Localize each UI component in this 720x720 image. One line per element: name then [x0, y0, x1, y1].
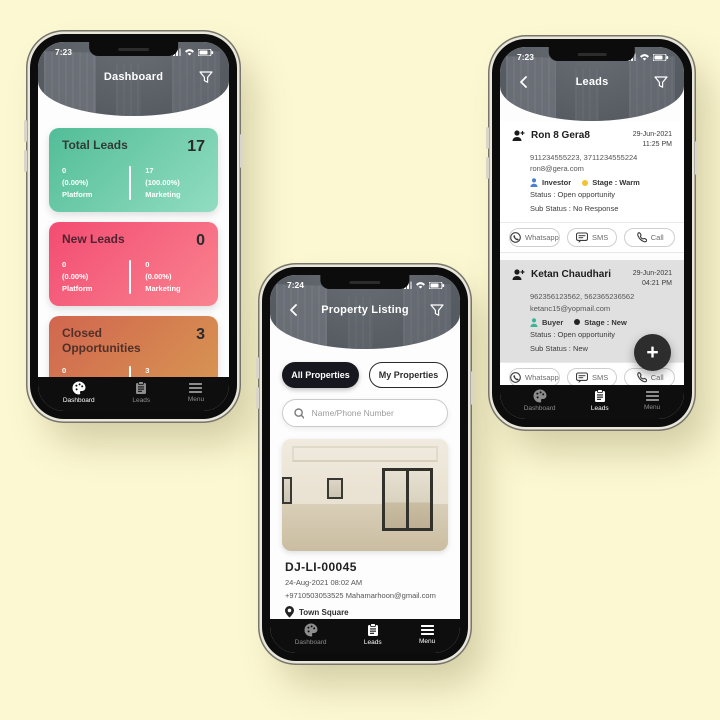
- dashboard-icon: [72, 381, 86, 395]
- bottom-nav: Dashboard Leads Menu: [500, 385, 684, 419]
- sms-button[interactable]: SMS: [567, 368, 618, 385]
- leads-screen: 7:23 Leads Ron 8 Gera8: [500, 47, 684, 419]
- tab-all-properties[interactable]: All Properties: [282, 362, 359, 388]
- marketing-stats: 3 (100.00%) Marketing: [129, 365, 205, 377]
- person-add-icon: [512, 130, 525, 142]
- nav-menu[interactable]: Menu: [644, 390, 660, 411]
- menu-icon: [646, 390, 659, 402]
- property-code: DJ-LI-00045: [285, 560, 445, 574]
- property-datetime: 24-Aug-2021 08:02 AM: [285, 578, 445, 587]
- property-tabs: All Properties My Properties: [282, 362, 448, 388]
- dashboard-icon: [304, 623, 318, 637]
- total-leads-card[interactable]: Total Leads 17 0 (0.00%) Platform 17 (10…: [49, 128, 218, 212]
- lead-card[interactable]: Ron 8 Gera8 29-Jun-2021 11:25 PM 9112345…: [500, 121, 684, 222]
- card-title: Closed Opportunities: [62, 326, 151, 356]
- whatsapp-icon: [510, 372, 521, 383]
- battery-icon: [198, 49, 214, 56]
- status-time: 7:23: [517, 52, 534, 62]
- back-button[interactable]: [515, 74, 531, 90]
- funnel-icon: [654, 76, 668, 89]
- call-icon: [636, 372, 647, 383]
- platform-stats: 0 (0.00%) Platform: [62, 259, 129, 295]
- lead-email: ketanc15@yopmail.com: [530, 304, 672, 313]
- power-button: [695, 141, 698, 175]
- phone-leads: 7:23 Leads Ron 8 Gera8: [492, 39, 692, 427]
- leads-icon: [594, 389, 606, 403]
- dashboard-icon: [533, 389, 547, 403]
- new-leads-card[interactable]: New Leads 0 0 (0.00%) Platform 0 (0.00%)…: [49, 222, 218, 306]
- whatsapp-button[interactable]: Whatsapp: [509, 368, 560, 385]
- sms-icon: [576, 232, 588, 243]
- phone-notch: [89, 42, 179, 56]
- platform-stats: 0 (0.00%) Platform: [62, 165, 129, 201]
- volume-down-button: [24, 150, 27, 172]
- closed-opportunities-card[interactable]: Closed Opportunities 3 0 (0.00%) Platfor…: [49, 316, 218, 377]
- wifi-icon: [185, 48, 194, 56]
- nav-dashboard[interactable]: Dashboard: [295, 623, 327, 646]
- chevron-left-icon: [289, 304, 298, 316]
- nav-leads[interactable]: Leads: [591, 389, 609, 412]
- volume-up-button: [256, 357, 259, 379]
- person-icon: [530, 318, 538, 327]
- lead-name: Ketan Chaudhari: [531, 269, 611, 280]
- whatsapp-icon: [510, 232, 521, 243]
- lead-datetime: 29-Jun-2021 04:21 PM: [633, 269, 672, 289]
- phone-property-listing: 7:24 Property Listing All Properties My …: [262, 267, 468, 661]
- nav-dashboard[interactable]: Dashboard: [524, 389, 556, 412]
- volume-up-button: [486, 127, 489, 149]
- filter-button[interactable]: [429, 302, 445, 318]
- nav-leads[interactable]: Leads: [132, 381, 150, 404]
- lead-status: Status : Open opportunity: [530, 189, 672, 201]
- property-listing-screen: 7:24 Property Listing All Properties My …: [270, 275, 460, 653]
- bottom-nav: Dashboard Leads Menu: [270, 619, 460, 653]
- funnel-icon: [199, 71, 213, 84]
- marketing-stats: 0 (0.00%) Marketing: [129, 259, 205, 295]
- leads-icon: [135, 381, 147, 395]
- property-community: Town Square: [285, 606, 445, 618]
- call-button[interactable]: Call: [624, 228, 675, 247]
- sms-button[interactable]: SMS: [567, 228, 618, 247]
- search-icon: [294, 408, 304, 419]
- lead-phones: 962356123562, 562365236562: [530, 292, 672, 301]
- card-value: 3: [196, 326, 205, 344]
- call-icon: [636, 232, 647, 243]
- battery-icon: [429, 282, 445, 289]
- sms-icon: [576, 372, 588, 383]
- power-button: [240, 134, 243, 168]
- volume-down-button: [256, 387, 259, 409]
- lead-email: ron8@gera.com: [530, 164, 672, 173]
- platform-stats: 0 (0.00%) Platform: [62, 365, 129, 377]
- stage-dot: [574, 319, 580, 325]
- menu-icon: [189, 382, 202, 394]
- filter-button[interactable]: [198, 69, 214, 85]
- property-photo[interactable]: [282, 439, 448, 551]
- lead-role-badge: Investor: [530, 178, 571, 187]
- battery-icon: [653, 54, 669, 61]
- lead-role-badge: Buyer: [530, 318, 563, 327]
- location-pin-icon: [285, 606, 294, 618]
- phone-notch: [320, 275, 409, 289]
- lead-datetime: 29-Jun-2021 11:25 PM: [633, 130, 672, 150]
- lead-sub-status: Sub Status : No Response: [530, 203, 672, 215]
- volume-down-button: [486, 157, 489, 179]
- wifi-icon: [416, 281, 425, 289]
- funnel-icon: [430, 304, 444, 317]
- lead-stage-badge: Stage : Warm: [582, 178, 640, 187]
- search-bar[interactable]: [282, 399, 448, 427]
- property-contact: +9710503053525 Mahamarhoon@gmail.com: [285, 591, 445, 600]
- status-time: 7:23: [55, 47, 72, 57]
- lead-actions: Whatsapp SMS Call: [500, 222, 684, 253]
- nav-menu[interactable]: Menu: [188, 382, 204, 403]
- bottom-nav: Dashboard Leads Menu: [38, 377, 229, 411]
- phone-dashboard: 7:23 Dashboard Total Leads 17: [30, 34, 237, 419]
- stage-dot: [582, 180, 588, 186]
- person-add-icon: [512, 269, 525, 281]
- back-button[interactable]: [285, 302, 301, 318]
- marketing-stats: 17 (100.00%) Marketing: [129, 165, 205, 201]
- nav-leads[interactable]: Leads: [364, 623, 382, 646]
- menu-icon: [421, 624, 434, 636]
- nav-menu[interactable]: Menu: [419, 624, 435, 645]
- lead-phones: 911234555223, 3711234555224: [530, 153, 672, 162]
- whatsapp-button[interactable]: Whatsapp: [509, 228, 560, 247]
- card-title: Total Leads: [62, 138, 128, 153]
- lead-name: Ron 8 Gera8: [531, 130, 590, 141]
- add-lead-fab[interactable]: +: [634, 334, 671, 371]
- search-input[interactable]: [312, 408, 436, 418]
- volume-up-button: [24, 120, 27, 142]
- phone-notch: [549, 47, 635, 61]
- card-value: 17: [187, 138, 205, 156]
- wifi-icon: [640, 53, 649, 61]
- filter-button[interactable]: [653, 74, 669, 90]
- status-time: 7:24: [287, 280, 304, 290]
- card-value: 0: [196, 232, 205, 250]
- lead-stage-badge: Stage : New: [574, 318, 627, 327]
- power-button: [471, 371, 474, 405]
- chevron-left-icon: [519, 76, 528, 88]
- person-icon: [530, 178, 538, 187]
- dashboard-screen: 7:23 Dashboard Total Leads 17: [38, 42, 229, 411]
- card-title: New Leads: [62, 232, 125, 247]
- nav-dashboard[interactable]: Dashboard: [63, 381, 95, 404]
- leads-icon: [367, 623, 379, 637]
- tab-my-properties[interactable]: My Properties: [369, 362, 448, 388]
